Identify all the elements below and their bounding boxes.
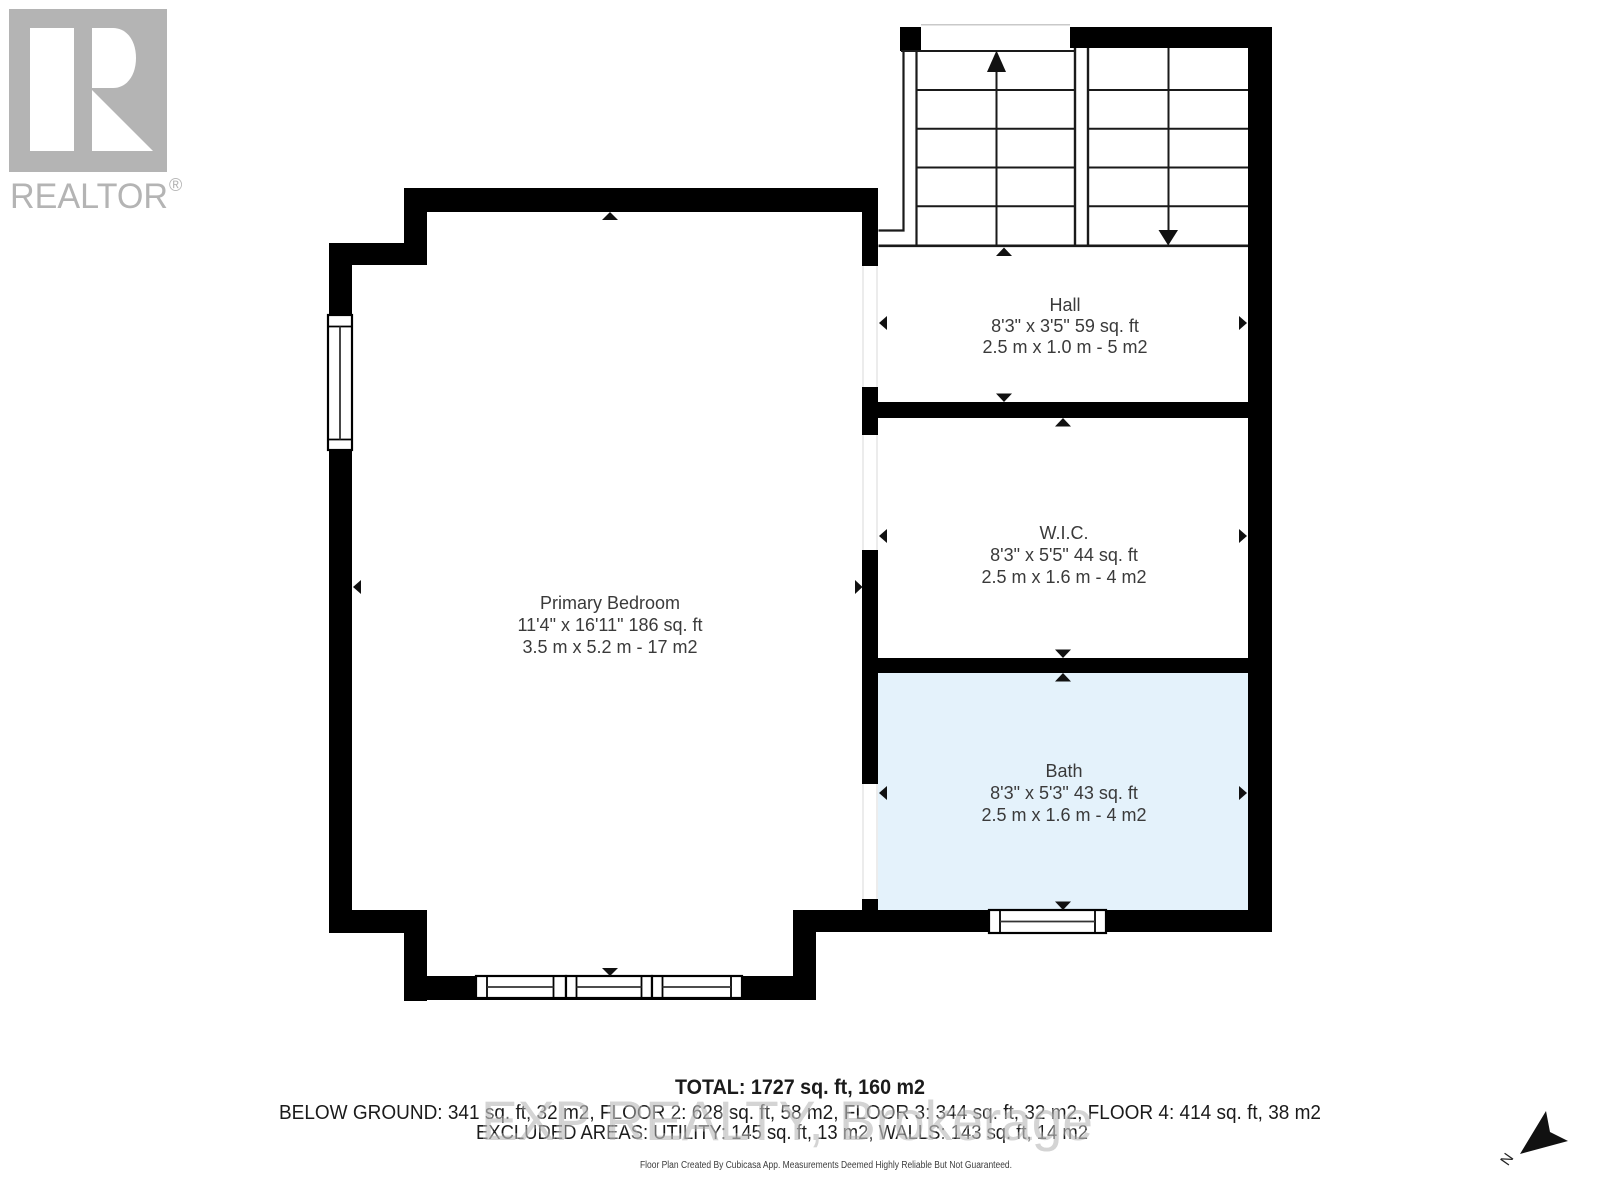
svg-text:N: N [1497, 1150, 1517, 1169]
svg-text:Hall: Hall [1049, 295, 1080, 315]
svg-text:Floor Plan Created By Cubicasa: Floor Plan Created By Cubicasa App. Meas… [640, 1160, 1012, 1171]
svg-text:®: ® [169, 175, 182, 195]
svg-text:2.5 m x 1.6 m - 4 m2: 2.5 m x 1.6 m - 4 m2 [981, 805, 1146, 825]
svg-text:EXP REALTY, Brokerage: EXP REALTY, Brokerage [481, 1089, 1093, 1152]
svg-text:3.5 m x 5.2 m - 17 m2: 3.5 m x 5.2 m - 17 m2 [522, 637, 697, 657]
svg-text:8'3" x 3'5" 59 sq. ft: 8'3" x 3'5" 59 sq. ft [991, 316, 1139, 336]
svg-text:Bath: Bath [1045, 761, 1082, 781]
svg-text:Primary Bedroom: Primary Bedroom [540, 593, 680, 613]
svg-text:11'4" x 16'11" 186 sq. ft: 11'4" x 16'11" 186 sq. ft [517, 615, 702, 635]
svg-text:8'3" x 5'5" 44 sq. ft: 8'3" x 5'5" 44 sq. ft [990, 545, 1138, 565]
svg-text:W.I.C.: W.I.C. [1040, 523, 1089, 543]
svg-text:REALTOR: REALTOR [10, 177, 168, 216]
svg-text:2.5 m x 1.6 m - 4 m2: 2.5 m x 1.6 m - 4 m2 [981, 567, 1146, 587]
svg-text:2.5 m x 1.0 m - 5 m2: 2.5 m x 1.0 m - 5 m2 [982, 337, 1147, 357]
svg-text:8'3" x 5'3" 43 sq. ft: 8'3" x 5'3" 43 sq. ft [990, 783, 1138, 803]
